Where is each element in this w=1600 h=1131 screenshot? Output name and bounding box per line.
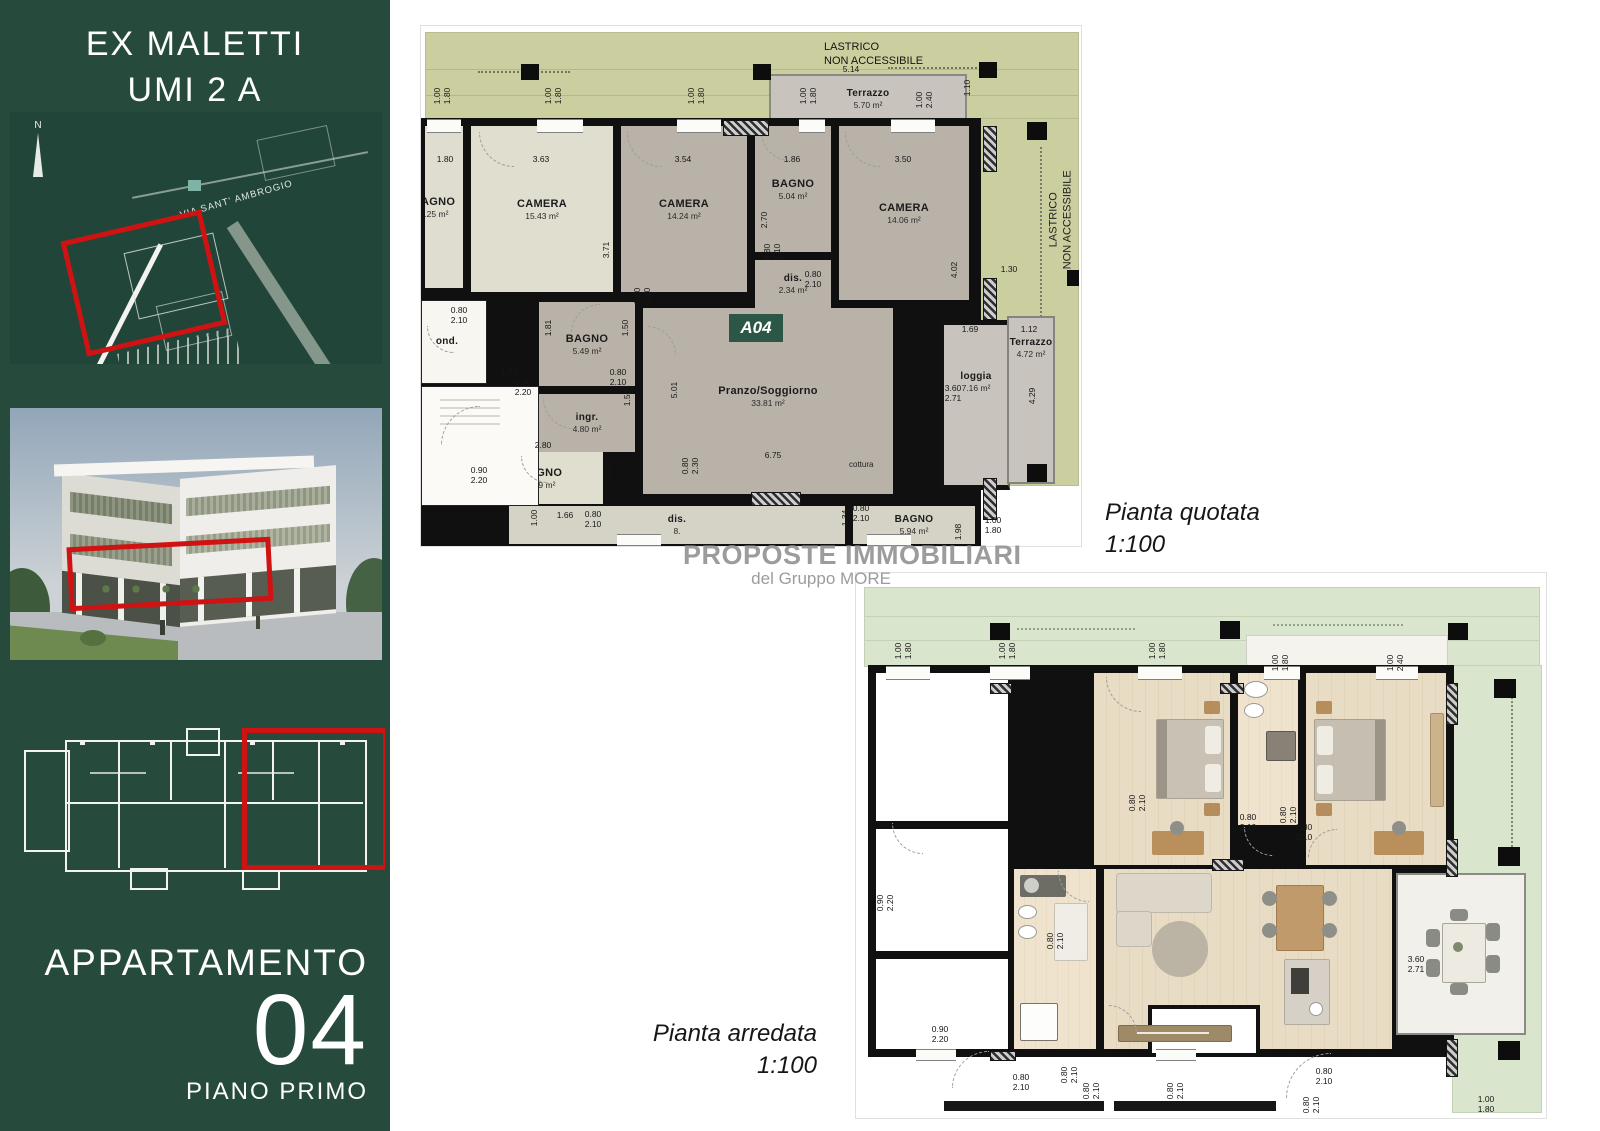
outdoor-chair [1426, 959, 1440, 977]
dimension-label: 1.12 [1021, 325, 1038, 335]
apartment-block: APPARTAMENTO 04 PIANO PRIMO [45, 942, 369, 1106]
site-map-thumbnail: N VIA SANT' AMBROGIO [10, 112, 382, 364]
sink [1244, 681, 1268, 698]
dimension-label: 1.66 [557, 511, 574, 521]
dimension-label: 0.90 2.20 [932, 1025, 949, 1045]
dimension-label: 4.29 [1028, 388, 1038, 405]
dimension-label: 1.50 [501, 367, 518, 377]
building-outline [256, 125, 335, 181]
person [256, 616, 260, 629]
project-title-line1: EX MALETTI [0, 22, 390, 68]
overview-highlight-rect [242, 728, 385, 870]
dimension-label: 1.80 [437, 155, 454, 165]
dimension-label: 0.90 2.20 [471, 466, 488, 486]
pianta-arredata: 1.00 1.801.00 1.801.00 1.801.00 1.801.00… [855, 572, 1547, 1119]
watermark-line1: PROPOSTE IMMOBILIARI [683, 540, 891, 571]
sofa-chaise [1116, 911, 1152, 947]
dimension-label: 1.00 1.80 [1271, 655, 1291, 672]
dimension-label: 4.02 [950, 262, 960, 279]
shower [1020, 1003, 1058, 1041]
dimension-label: 0.80 2.10 [1279, 807, 1299, 824]
dimension-label: 0.80 2.10 [1082, 1083, 1102, 1100]
outdoor-chair [1450, 983, 1468, 995]
dimension-label: 3.60 2.71 [1408, 955, 1425, 975]
dimension-label: 1.00 1.80 [998, 643, 1018, 660]
outdoor-table [1442, 923, 1486, 983]
dimension-label: 0.80 2.10 [610, 368, 627, 388]
outdoor-chair [1486, 923, 1500, 941]
dimension-label: 1.00 1.80 [985, 516, 1002, 536]
chair [1392, 821, 1406, 835]
dimension-label: 0.80 2.10 [1302, 1097, 1322, 1114]
dimension-label: 1.34 [841, 510, 851, 527]
dimension-label: 1.00 2.40 [915, 92, 935, 109]
dimension-label: 0.80 2.10 [805, 270, 822, 290]
dimension-label: 2.70 [760, 212, 770, 229]
dimension-label: 1.50 [623, 390, 633, 407]
nightstand [1316, 701, 1332, 714]
building-render [10, 408, 382, 660]
dimension-label: 1.00 1.80 [433, 88, 453, 105]
outdoor-chair [1426, 929, 1440, 947]
dimension-label: 1.30 [1001, 265, 1018, 275]
dimension-label: 1.00 1.80 [1478, 1095, 1495, 1115]
dimension-label: 1.86 [784, 155, 801, 165]
dimension-label: 1.69 [962, 325, 979, 335]
dimension-label: 3.60 2.71 [945, 384, 962, 404]
watermark-line2: del Gruppo MORE [683, 569, 891, 589]
dimension-label: 0.80 2.10 [1060, 1067, 1080, 1084]
dimension-label: 1.98 [954, 524, 964, 541]
kitchen-island [1284, 959, 1330, 1025]
dimension-label: 1.00 1.80 [1148, 643, 1168, 660]
dimension-label: 3.54 [675, 155, 692, 165]
dimension-label: 0.80 2.10 [1316, 1067, 1333, 1087]
unit-badge: A04 [729, 314, 783, 342]
dimension-label: 2.80 [535, 441, 552, 451]
dimension-label: 0.80 2.10 [1128, 795, 1148, 812]
chair [1170, 821, 1184, 835]
apartment-number: 04 [45, 984, 369, 1076]
dimension-label: 1.00 1.80 [799, 88, 819, 105]
dimension-label: 0.80 2.10 [1296, 823, 1313, 843]
dining-table [1276, 885, 1324, 951]
wardrobe [1430, 713, 1444, 807]
dimension-label: 6.75 [765, 451, 782, 461]
dimension-label: 0.90 2.20 [876, 895, 896, 912]
chair [1262, 891, 1277, 906]
dimension-label: 0.80 2.10 [633, 288, 653, 305]
bed [1156, 719, 1224, 799]
bidet [1244, 703, 1264, 718]
render-highlight-rect [66, 537, 273, 612]
outdoor-chair [1450, 909, 1468, 921]
dimension-label: 0.80 2.10 [1013, 1073, 1030, 1093]
dimension-label: 3.50 [895, 155, 912, 165]
dimension-label: 1.81 [544, 320, 554, 337]
dimension-label: 5.01 [670, 382, 680, 399]
rug [1152, 921, 1208, 977]
shrub [80, 630, 106, 646]
dimension-label: 1.50 [621, 320, 631, 337]
outdoor-chair [1486, 955, 1500, 973]
cottura-label: cottura [849, 460, 873, 469]
floor-label: PIANO PRIMO [45, 1078, 369, 1106]
north-icon: N [28, 120, 48, 180]
nightstand [1204, 701, 1220, 714]
caption-quotata: Pianta quotata 1:100 [1105, 497, 1260, 562]
bidet [1018, 925, 1037, 939]
dimension-label: 0.90 2.20 [515, 378, 532, 398]
dimension-label: 0.80 2.10 [1240, 813, 1257, 833]
sidebar: EX MALETTI UMI 2 A N VIA SANT' AMBROGIO [0, 0, 390, 1131]
dimension-label: 0.80 2.10 [451, 306, 468, 326]
brochure-page: EX MALETTI UMI 2 A N VIA SANT' AMBROGIO [0, 0, 1600, 1131]
dimension-label: 3.71 [602, 242, 612, 259]
project-title: EX MALETTI UMI 2 A [0, 22, 390, 114]
caption-arredata: Pianta arredata 1:100 [617, 1018, 817, 1083]
dimension-label: 0.80 2.10 [1046, 933, 1066, 950]
dimension-label: 1.10 [963, 80, 973, 97]
dimension-label: 1.00 1.80 [687, 88, 707, 105]
dimension-label: 0.80 2.10 [585, 510, 602, 530]
wc [1018, 905, 1037, 919]
pianta-quotata: LASTRICO NON ACCESSIBILE LASTRICO NON AC… [420, 25, 1082, 547]
chair [1262, 923, 1277, 938]
nightstand [1204, 803, 1220, 816]
dimension-label: 5.14 [843, 65, 860, 75]
floor-overview-thumbnail [10, 688, 385, 918]
shower [1266, 731, 1296, 761]
bed [1314, 719, 1386, 801]
quotata-dim-layer: 1.00 1.801.00 1.801.00 1.801.00 1.801.00… [421, 26, 1081, 546]
dimension-label: 1.50 [604, 466, 614, 483]
road-line [227, 221, 382, 364]
sofa [1116, 873, 1212, 913]
dimension-label: 0.80 2.30 [681, 458, 701, 475]
chair [1322, 891, 1337, 906]
chair [1322, 923, 1337, 938]
dimension-label: 1.00 1.80 [544, 88, 564, 105]
dimension-label: 1.00 2.40 [1386, 655, 1406, 672]
building-fill [188, 180, 201, 191]
dimension-label: 1.00 [530, 510, 540, 527]
project-title-line2: UMI 2 A [0, 68, 390, 114]
nightstand [1316, 803, 1332, 816]
person [160, 620, 165, 635]
dimension-label: 0.80 2.10 [853, 504, 870, 524]
dimension-label: 3.63 [533, 155, 550, 165]
dimension-label: 0.80 2.10 [763, 244, 783, 261]
watermark: PROPOSTE IMMOBILIARI del Gruppo MORE [683, 540, 891, 589]
dimension-label: 1.00 1.80 [894, 643, 914, 660]
dimension-label: 0.80 2.10 [1166, 1083, 1186, 1100]
